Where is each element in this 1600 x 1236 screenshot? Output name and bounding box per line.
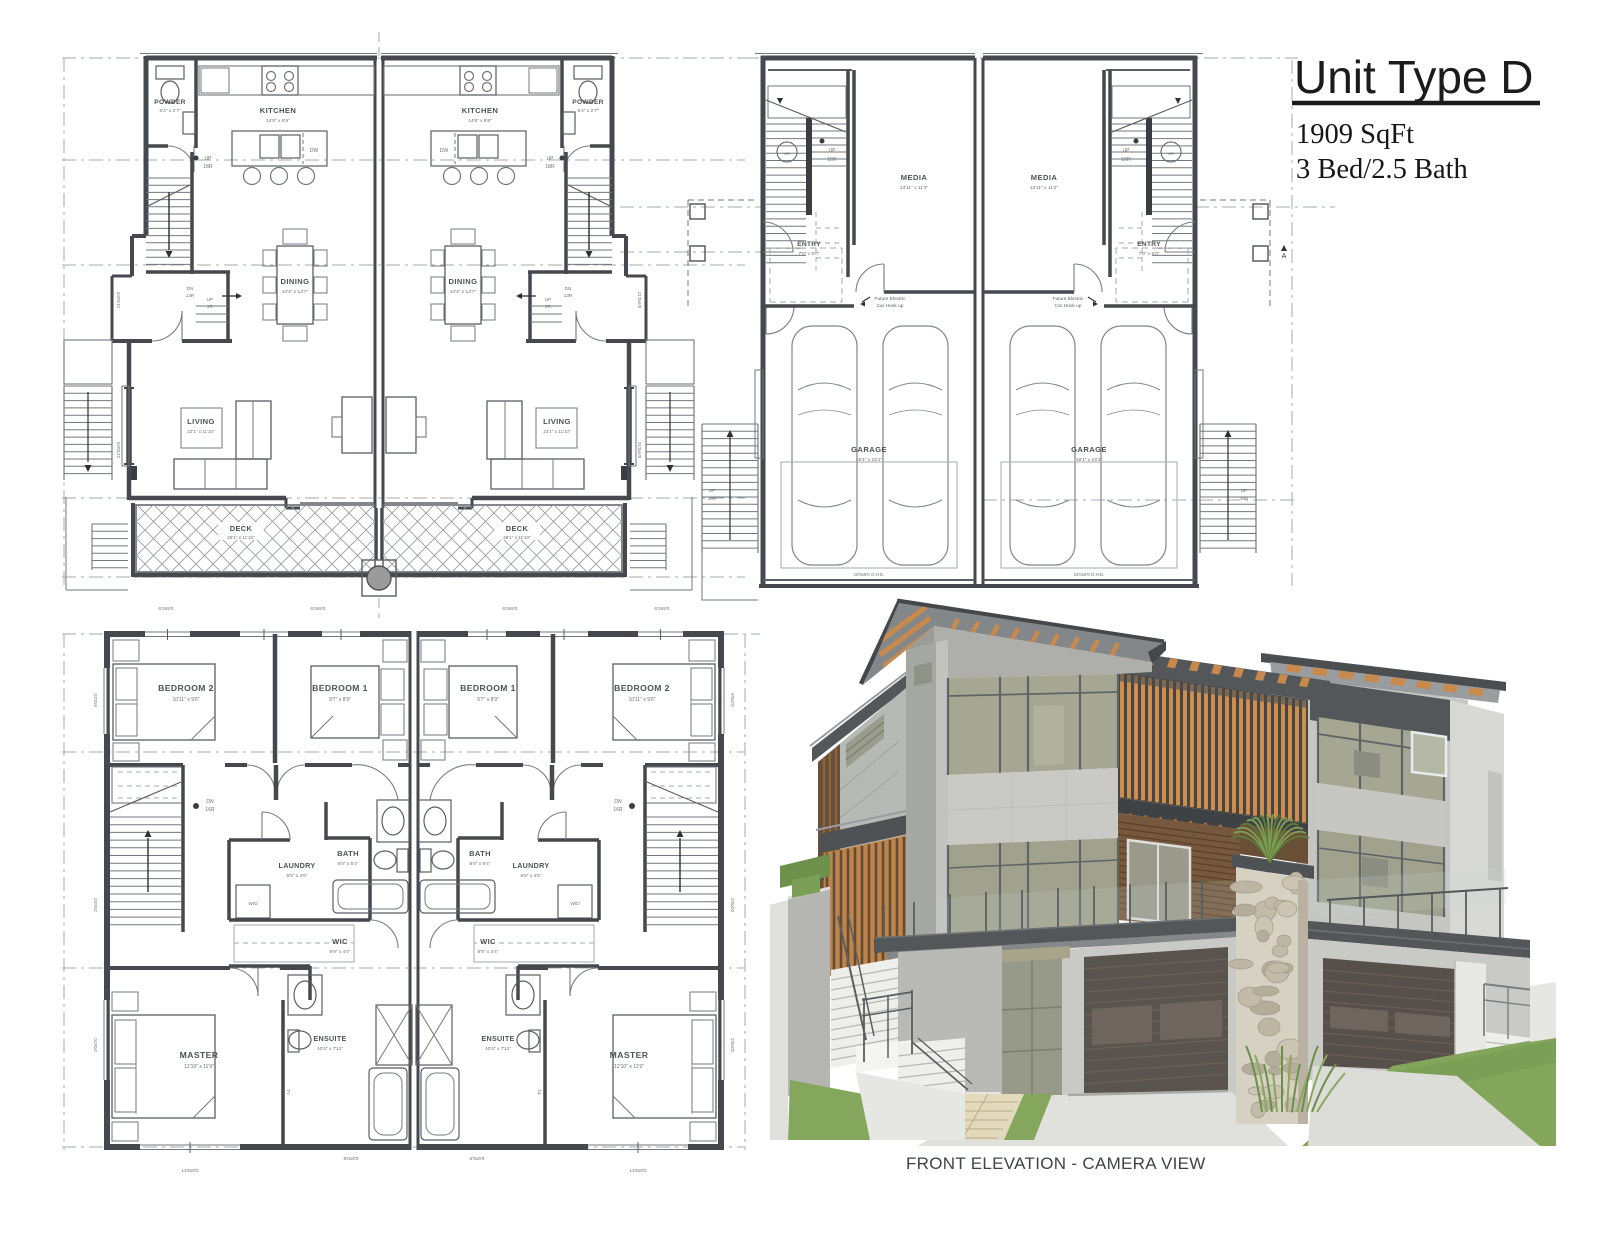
svg-text:KITCHEN: KITCHEN — [260, 106, 297, 115]
svg-text:UP: UP — [207, 297, 213, 302]
svg-text:6'0x5'0: 6'0x5'0 — [503, 606, 518, 612]
svg-text:9'7" x 8'9": 9'7" x 8'9" — [477, 697, 499, 703]
svg-text:MEDIA: MEDIA — [901, 173, 928, 182]
svg-text:8'0x2'0: 8'0x2'0 — [93, 693, 98, 707]
svg-text:6R: 6R — [1168, 151, 1173, 156]
svg-text:10'11" x 9'6": 10'11" x 9'6" — [172, 697, 199, 703]
svg-text:11'9x6'0: 11'9x6'0 — [181, 1168, 199, 1174]
svg-text:DN: DN — [206, 799, 214, 805]
svg-text:DECK: DECK — [506, 524, 529, 533]
svg-text:21'0x6'0: 21'0x6'0 — [637, 292, 642, 309]
svg-text:6'0x6'0: 6'0x6'0 — [344, 1156, 359, 1162]
svg-text:10'4" x 7'11": 10'4" x 7'11" — [317, 1046, 343, 1052]
svg-text:POWDER: POWDER — [572, 99, 603, 106]
svg-text:UP: UP — [709, 488, 715, 493]
svg-text:6'5" x 4'6": 6'5" x 4'6" — [521, 873, 542, 879]
svg-text:2'0x4'0: 2'0x4'0 — [730, 898, 735, 912]
svg-text:DN: DN — [565, 286, 572, 291]
svg-text:Future Electric: Future Electric — [1053, 296, 1085, 302]
svg-text:8'0" x 5'4": 8'0" x 5'4" — [470, 861, 491, 867]
svg-text:BEDROOM 2: BEDROOM 2 — [158, 683, 214, 693]
svg-text:18R: 18R — [545, 164, 555, 170]
svg-text:POWDER: POWDER — [154, 99, 185, 106]
svg-text:21'0x6'0: 21'0x6'0 — [116, 441, 121, 458]
svg-text:LIVING: LIVING — [543, 417, 571, 426]
svg-text:6'4" x 2'7": 6'4" x 2'7" — [578, 108, 599, 114]
svg-text:14'8" x 8'6": 14'8" x 8'6" — [468, 118, 492, 124]
svg-text:11'9x6'0: 11'9x6'0 — [629, 1168, 647, 1174]
svg-text:18'0x8'0 O.H.D.: 18'0x8'0 O.H.D. — [1074, 572, 1105, 577]
svg-text:MEDIA: MEDIA — [1031, 173, 1058, 182]
svg-text:16R: 16R — [708, 496, 717, 501]
svg-text:9'7" x 8'9": 9'7" x 8'9" — [329, 697, 351, 703]
svg-text:13R: 13R — [186, 293, 195, 298]
svg-text:BATH: BATH — [469, 849, 491, 858]
svg-text:8'9" x 4'4": 8'9" x 4'4" — [330, 949, 351, 955]
svg-text:13R: 13R — [564, 293, 573, 298]
svg-text:ENSUITE: ENSUITE — [313, 1034, 346, 1043]
svg-text:UP: UP — [547, 156, 555, 162]
svg-text:TV: TV — [537, 1088, 542, 1095]
svg-text:10'11" x 9'6": 10'11" x 9'6" — [628, 697, 655, 703]
svg-text:BATH: BATH — [337, 849, 359, 858]
svg-text:16R: 16R — [613, 807, 623, 813]
svg-text:16R: 16R — [827, 157, 837, 163]
svg-text:GARAGE: GARAGE — [1071, 445, 1107, 454]
svg-text:13'11" x 11'2": 13'11" x 11'2" — [1030, 185, 1059, 191]
svg-text:TV: TV — [286, 1089, 291, 1096]
svg-text:DN: DN — [614, 799, 622, 805]
svg-text:6'0x5'0: 6'0x5'0 — [311, 606, 326, 612]
svg-text:Unit Type D: Unit Type D — [1294, 51, 1533, 103]
svg-text:DN: DN — [187, 286, 194, 291]
svg-text:6R: 6R — [784, 151, 789, 156]
svg-text:21'0x6'0: 21'0x6'0 — [637, 442, 642, 459]
svg-text:12'10" x 11'9": 12'10" x 11'9" — [614, 1064, 644, 1070]
svg-text:BEDROOM 1: BEDROOM 1 — [312, 683, 368, 693]
svg-text:6'0x6'0: 6'0x6'0 — [470, 1156, 485, 1162]
svg-text:MASTER: MASTER — [610, 1050, 649, 1060]
svg-text:1909 SqFt: 1909 SqFt — [1296, 119, 1414, 150]
svg-text:UP: UP — [829, 148, 837, 154]
svg-text:BEDROOM 1: BEDROOM 1 — [460, 683, 516, 693]
svg-text:Car Hook up: Car Hook up — [1055, 303, 1082, 309]
svg-text:DINING: DINING — [281, 277, 310, 286]
svg-text:22'1" x 11'10": 22'1" x 11'10" — [187, 429, 215, 434]
svg-text:26'1" x 11'10": 26'1" x 11'10" — [503, 535, 531, 540]
svg-text:18'0x8'0 O.H.D.: 18'0x8'0 O.H.D. — [854, 572, 885, 577]
svg-text:DW: DW — [310, 148, 319, 154]
svg-text:MASTER: MASTER — [180, 1050, 219, 1060]
svg-text:2'0x2'0: 2'0x2'0 — [93, 1038, 98, 1052]
svg-text:26'1" x 11'10": 26'1" x 11'10" — [227, 535, 255, 540]
svg-text:6'5" x 4'6": 6'5" x 4'6" — [287, 873, 308, 879]
svg-text:14'4" x 14'7": 14'4" x 14'7" — [282, 289, 309, 295]
svg-text:DW: DW — [440, 148, 449, 154]
svg-text:6'0x5'0: 6'0x5'0 — [159, 606, 174, 612]
svg-text:FRONT ELEVATION - CAMERA VIEW: FRONT ELEVATION - CAMERA VIEW — [906, 1154, 1206, 1173]
svg-text:16R: 16R — [205, 807, 215, 813]
svg-text:14'8" x 8'6": 14'8" x 8'6" — [266, 118, 290, 124]
svg-text:7'0" x 6'0": 7'0" x 6'0" — [1139, 251, 1160, 257]
svg-text:ENTRY: ENTRY — [797, 241, 821, 248]
svg-text:ENSUITE: ENSUITE — [481, 1034, 514, 1043]
svg-text:8'0" x 5'4": 8'0" x 5'4" — [338, 861, 359, 867]
svg-text:KITCHEN: KITCHEN — [462, 106, 499, 115]
svg-text:UP: UP — [545, 297, 551, 302]
svg-text:22'1" x 11'10": 22'1" x 11'10" — [543, 429, 571, 434]
svg-text:UP: UP — [205, 156, 213, 162]
svg-text:6'4" x 2'7": 6'4" x 2'7" — [160, 108, 181, 114]
svg-text:W/D: W/D — [570, 901, 580, 907]
svg-text:UP: UP — [1123, 148, 1131, 154]
svg-text:WIC: WIC — [480, 937, 496, 946]
svg-text:Car Hook up: Car Hook up — [877, 303, 904, 309]
svg-text:Future Electric: Future Electric — [875, 296, 907, 302]
svg-text:LAUNDRY: LAUNDRY — [279, 861, 316, 870]
svg-text:A: A — [1282, 253, 1287, 260]
svg-text:GARAGE: GARAGE — [851, 445, 887, 454]
svg-text:8'9" x 4'4": 8'9" x 4'4" — [478, 949, 499, 955]
svg-text:3 Bed/2.5 Bath: 3 Bed/2.5 Bath — [1296, 154, 1468, 185]
svg-text:WIC: WIC — [332, 937, 348, 946]
svg-text:7'0" x 6'0": 7'0" x 6'0" — [799, 251, 820, 257]
svg-text:2'0x2'0: 2'0x2'0 — [730, 1038, 735, 1052]
svg-text:18R: 18R — [203, 164, 213, 170]
svg-text:8'0x2'0: 8'0x2'0 — [730, 693, 735, 707]
svg-text:LAUNDRY: LAUNDRY — [513, 861, 550, 870]
svg-text:12'10" x 11'9": 12'10" x 11'9" — [184, 1064, 214, 1070]
svg-text:DINING: DINING — [449, 277, 478, 286]
svg-text:LIVING: LIVING — [187, 417, 215, 426]
svg-text:16R: 16R — [1121, 157, 1131, 163]
svg-text:BEDROOM 2: BEDROOM 2 — [614, 683, 670, 693]
svg-text:ENTRY: ENTRY — [1137, 241, 1161, 248]
svg-text:21'0x6'0: 21'0x6'0 — [116, 291, 121, 308]
svg-text:16R: 16R — [1240, 496, 1249, 501]
svg-text:UP: UP — [1241, 488, 1247, 493]
svg-text:10'4" x 7'11": 10'4" x 7'11" — [485, 1046, 511, 1052]
svg-text:2'0x4'0: 2'0x4'0 — [93, 898, 98, 912]
svg-text:DECK: DECK — [230, 524, 253, 533]
svg-text:6'0x5'0: 6'0x5'0 — [655, 606, 670, 612]
svg-text:W/D: W/D — [248, 901, 258, 907]
svg-text:13'11" x 11'2": 13'11" x 11'2" — [900, 185, 929, 191]
svg-text:14'4" x 14'7": 14'4" x 14'7" — [450, 289, 477, 295]
